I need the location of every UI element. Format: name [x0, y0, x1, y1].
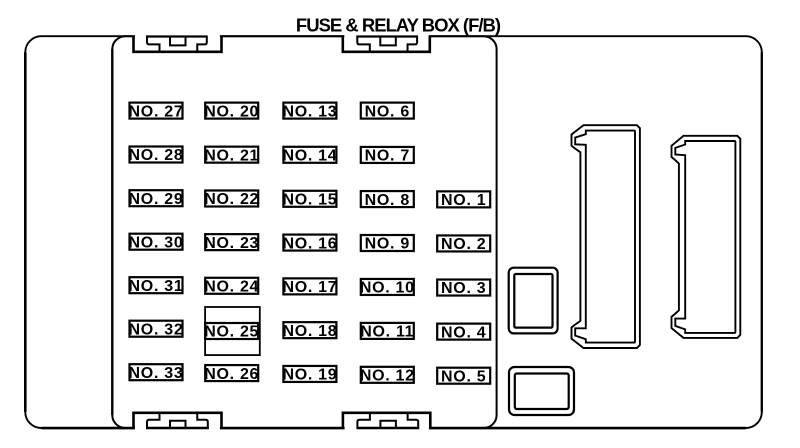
- svg-text:NO. 29: NO. 29: [129, 191, 184, 208]
- svg-text:NO. 2: NO. 2: [441, 236, 486, 253]
- svg-text:NO. 25: NO. 25: [204, 324, 259, 341]
- svg-text:NO. 33: NO. 33: [129, 365, 184, 382]
- svg-text:NO. 31: NO. 31: [129, 278, 184, 295]
- svg-text:NO. 19: NO. 19: [282, 367, 337, 384]
- svg-text:NO. 18: NO. 18: [282, 323, 337, 340]
- svg-text:NO. 3: NO. 3: [441, 280, 486, 297]
- svg-text:NO. 1: NO. 1: [441, 192, 486, 209]
- svg-text:NO. 24: NO. 24: [204, 278, 259, 295]
- svg-text:NO. 15: NO. 15: [282, 191, 337, 208]
- svg-text:NO. 20: NO. 20: [204, 103, 259, 120]
- svg-text:NO. 22: NO. 22: [204, 191, 259, 208]
- svg-text:NO. 7: NO. 7: [365, 148, 410, 165]
- svg-text:NO. 5: NO. 5: [441, 368, 486, 385]
- svg-text:NO. 10: NO. 10: [360, 280, 415, 297]
- svg-text:NO. 9: NO. 9: [365, 236, 410, 253]
- svg-text:FUSE & RELAY BOX (F/B): FUSE & RELAY BOX (F/B): [296, 15, 501, 36]
- svg-text:NO. 12: NO. 12: [360, 368, 415, 385]
- svg-text:NO. 16: NO. 16: [282, 235, 337, 252]
- svg-text:NO. 30: NO. 30: [129, 234, 184, 251]
- svg-text:NO. 8: NO. 8: [365, 192, 410, 209]
- svg-text:NO. 6: NO. 6: [365, 103, 410, 120]
- svg-text:NO. 28: NO. 28: [129, 147, 184, 164]
- svg-text:NO. 26: NO. 26: [204, 366, 259, 383]
- svg-text:NO. 11: NO. 11: [360, 324, 414, 341]
- svg-text:NO. 13: NO. 13: [282, 103, 337, 120]
- svg-text:NO. 21: NO. 21: [204, 147, 259, 164]
- svg-text:NO. 17: NO. 17: [282, 279, 337, 296]
- svg-text:NO. 32: NO. 32: [129, 321, 184, 338]
- svg-text:NO. 23: NO. 23: [204, 235, 259, 252]
- svg-text:NO. 14: NO. 14: [282, 147, 337, 164]
- svg-text:NO. 4: NO. 4: [441, 324, 486, 341]
- svg-text:NO. 27: NO. 27: [129, 103, 184, 120]
